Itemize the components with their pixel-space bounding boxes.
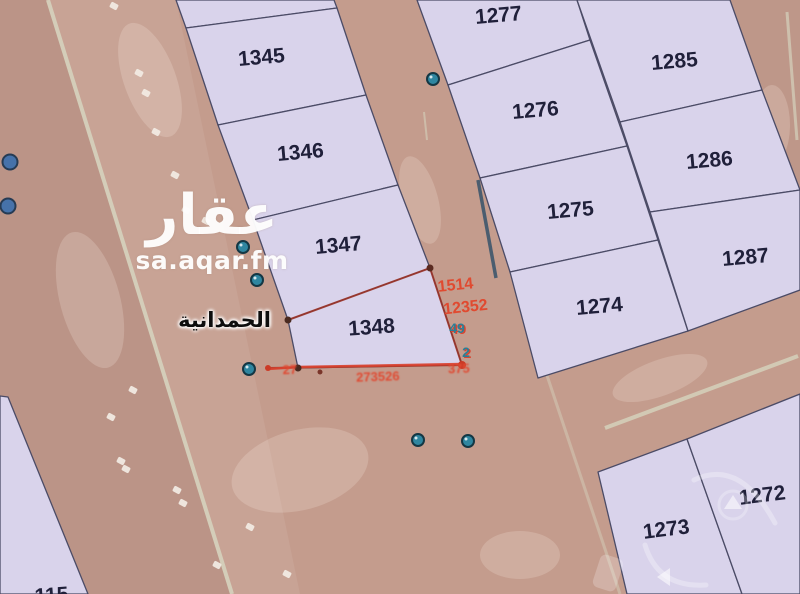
map-pin-shine	[254, 277, 257, 280]
survey-annotation: 273526	[356, 368, 400, 385]
parcel-number-115: 115	[34, 583, 70, 594]
map-pin-marker[interactable]	[462, 435, 474, 447]
cadastral-map-canvas[interactable]: 1345134613471348127712761275127412851286…	[0, 0, 800, 594]
parcel-number-1285: 1285	[650, 48, 699, 75]
parcel-number-1274: 1274	[575, 293, 624, 320]
map-pin-marker[interactable]	[427, 73, 439, 85]
survey-corner-dot	[265, 365, 271, 371]
survey-annotation: 375	[448, 361, 470, 377]
survey-corner-dot	[427, 265, 434, 272]
parcel-number-1277: 1277	[474, 2, 523, 29]
survey-annotation: 49	[449, 320, 465, 336]
survey-annotation: 27	[282, 362, 297, 377]
map-pin-marker[interactable]	[237, 241, 249, 253]
map-pin-marker[interactable]	[412, 434, 424, 446]
survey-corner-dot	[318, 370, 323, 375]
parcel-number-1345: 1345	[237, 44, 286, 71]
district-label: الحمدانية	[142, 308, 307, 332]
roadside-marker[interactable]	[1, 199, 16, 214]
map-pin-shine	[415, 437, 418, 440]
parcel-number-1276: 1276	[511, 97, 560, 124]
map-viewport[interactable]: 1345134613471348127712761275127412851286…	[0, 0, 800, 594]
map-pin-shine	[246, 366, 249, 369]
parcel-number-1348: 1348	[347, 314, 396, 340]
map-pin-shine	[465, 438, 468, 441]
map-pin-marker[interactable]	[243, 363, 255, 375]
parcel-number-1286: 1286	[685, 147, 734, 174]
map-pin-marker[interactable]	[251, 274, 263, 286]
parcel-number-1275: 1275	[546, 197, 595, 224]
sand-patch	[480, 531, 560, 579]
map-pin-shine	[430, 76, 433, 79]
parcel-number-1287: 1287	[721, 244, 770, 271]
roadside-marker[interactable]	[3, 155, 18, 170]
survey-annotation: 2	[462, 344, 470, 360]
map-pin-shine	[240, 244, 243, 247]
parcel-number-1347: 1347	[314, 232, 363, 259]
parcel-number-1346: 1346	[276, 139, 325, 166]
